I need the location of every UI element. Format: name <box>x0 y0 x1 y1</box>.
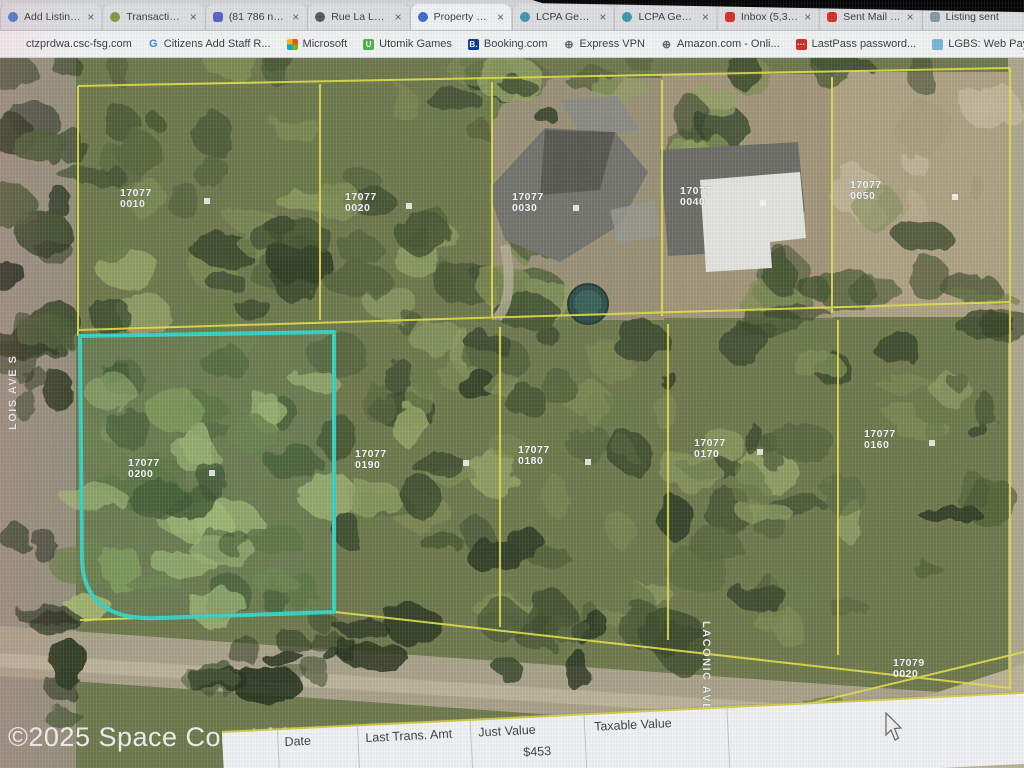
bookmark-item[interactable]: ⊕Amazon.com - Onli... <box>661 38 780 50</box>
bookmark-label: Citizens Add Staff R... <box>164 38 271 50</box>
column-divider <box>584 715 588 768</box>
tab-close-icon[interactable]: × <box>702 11 709 23</box>
screen: 1707700101707700201707700301707700401707… <box>0 0 1024 768</box>
globe-teal-icon <box>520 12 530 22</box>
globe-teal-icon <box>622 12 632 22</box>
tab-label: LCPA Geo View <box>638 11 695 23</box>
google-g-icon: G <box>148 39 159 50</box>
globe-icon: ⊕ <box>661 39 672 50</box>
transaction-icon <box>110 12 120 22</box>
globe-icon: ⊕ <box>564 39 575 50</box>
photo-grain <box>0 52 1024 768</box>
bookmark-item[interactable]: LGBS: Web Payments <box>932 38 1024 50</box>
lastpass-icon: ··· <box>796 39 807 50</box>
column-divider <box>726 708 730 768</box>
booking-icon: B. <box>468 39 479 50</box>
tab-label: Inbox (5,379) <box>741 11 798 23</box>
bookmark-item[interactable]: Microsoft <box>287 38 348 50</box>
browser-tab[interactable]: Add Listing | fl...× <box>0 4 101 30</box>
pinwheel-icon <box>418 12 428 22</box>
bookmark-label: Booking.com <box>484 38 548 50</box>
tab-label: (81 786 non lu... <box>229 11 286 23</box>
browser-tab[interactable]: Transaction | F...× <box>102 4 203 30</box>
browser-tab[interactable]: LCPA Geo View× <box>512 4 613 30</box>
tab-close-icon[interactable]: × <box>395 11 402 23</box>
browser-tab-strip: Add Listing | fl...×Transaction | F...×(… <box>0 0 1024 31</box>
browser-chrome: Add Listing | fl...×Transaction | F...×(… <box>0 0 1024 58</box>
table-value-partial: $453 <box>523 744 551 759</box>
bookmark-label: Express VPN <box>580 38 645 50</box>
gmail-icon <box>725 12 735 22</box>
tab-label: Transaction | F... <box>126 11 183 23</box>
browser-tab[interactable]: Property Data× <box>410 4 511 30</box>
bookmark-label: Utomik Games <box>379 38 452 50</box>
tab-close-icon[interactable]: × <box>190 11 197 23</box>
browser-tab[interactable]: Sent Mail - m...× <box>819 4 920 30</box>
tab-label: Listing sent <box>946 11 1016 23</box>
bookmark-label: Microsoft <box>303 38 348 50</box>
tab-label: Add Listing | fl... <box>24 11 81 23</box>
browser-tab[interactable]: (81 786 non lu...× <box>205 4 306 30</box>
browser-tab[interactable]: Listing sent <box>922 4 1023 30</box>
column-header-taxable-value: Taxable Value <box>594 716 672 734</box>
tab-label: Sent Mail - m... <box>843 11 900 23</box>
bookmark-item[interactable]: ctzprdwa.csc-fsg.com <box>10 38 132 50</box>
column-header-last-trans-amt: Last Trans. Amt <box>365 727 452 745</box>
bookmark-item[interactable]: ···LastPass password... <box>796 38 917 50</box>
shopping-icon <box>315 12 325 22</box>
bookmark-item[interactable]: GCitizens Add Staff R... <box>148 38 271 50</box>
bookmark-item[interactable]: UUtomik Games <box>363 38 452 50</box>
mail-gray-icon <box>930 12 940 22</box>
bookmark-label: ctzprdwa.csc-fsg.com <box>26 38 132 50</box>
lgbs-icon <box>932 39 943 50</box>
tab-close-icon[interactable]: × <box>804 11 811 23</box>
browser-tab[interactable]: Rue La La — C...× <box>307 4 408 30</box>
bookmark-label: LastPass password... <box>812 38 917 50</box>
column-divider <box>357 726 361 768</box>
tab-label: Property Data <box>434 11 491 23</box>
column-header-date: Date <box>284 734 311 749</box>
gmail-icon <box>827 12 837 22</box>
browser-tab[interactable]: Inbox (5,379)× <box>717 4 818 30</box>
tab-close-icon[interactable]: × <box>87 11 94 23</box>
gis-aerial-map[interactable]: 1707700101707700201707700301707700401707… <box>0 0 1024 768</box>
column-divider <box>470 721 474 768</box>
bookmark-item[interactable]: B.Booking.com <box>468 38 548 50</box>
bookmark-label: LGBS: Web Payments <box>948 38 1024 50</box>
browser-tab[interactable]: LCPA Geo View× <box>614 4 715 30</box>
utomik-icon: U <box>363 39 374 50</box>
globe-icon <box>10 39 21 50</box>
microsoft-icon <box>287 39 298 50</box>
column-header-just-value: Just Value <box>478 723 536 740</box>
tab-label: Rue La La — C... <box>331 11 388 23</box>
mail-icon <box>213 12 223 22</box>
listing-icon <box>8 12 18 22</box>
tab-close-icon[interactable]: × <box>907 11 914 23</box>
bookmark-item[interactable]: ⊕Express VPN <box>564 38 645 50</box>
tab-close-icon[interactable]: × <box>292 11 299 23</box>
bookmark-label: Amazon.com - Onli... <box>677 38 780 50</box>
bookmarks-bar: ctzprdwa.csc-fsg.comGCitizens Add Staff … <box>0 31 1024 58</box>
column-divider <box>277 730 281 768</box>
tab-label: LCPA Geo View <box>536 11 593 23</box>
tab-close-icon[interactable]: × <box>497 11 504 23</box>
tab-close-icon[interactable]: × <box>599 11 606 23</box>
